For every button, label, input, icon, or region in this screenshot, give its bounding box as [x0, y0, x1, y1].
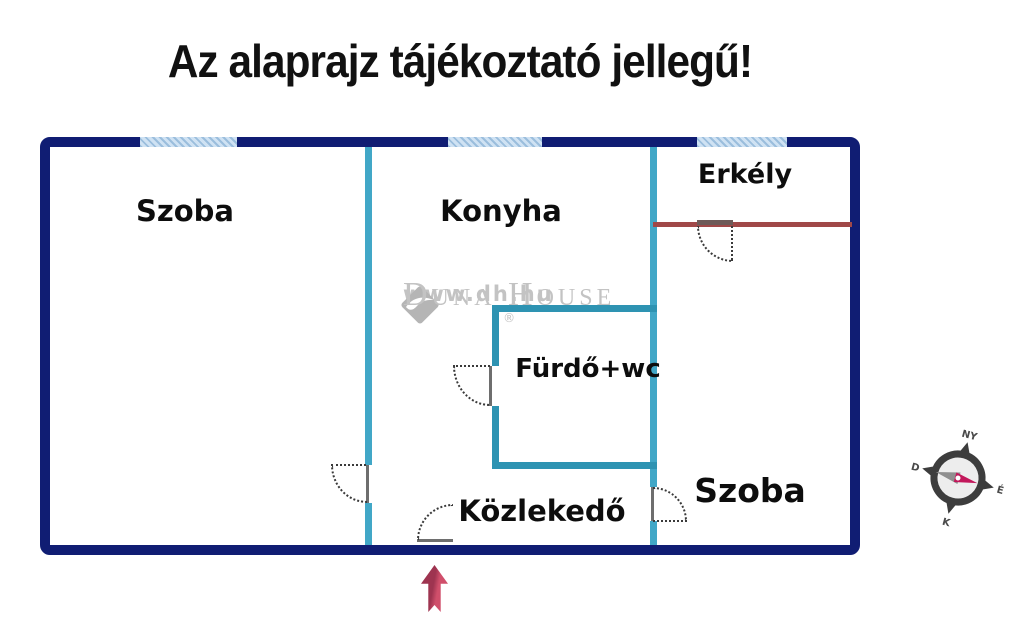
door-leaf-balcony: [697, 220, 733, 225]
door-open-line-szoba-right: [653, 520, 687, 522]
window-erkely: [697, 137, 787, 147]
window-szoba-left: [140, 137, 237, 147]
wall-konyha-szoba-right-upper: [650, 147, 657, 487]
watermark-brand: Duna House: [403, 280, 615, 311]
registered-mark: ®: [503, 311, 515, 325]
compass-east-label: K: [941, 517, 953, 530]
window-konyha: [448, 137, 542, 147]
compass-north-label: É: [995, 483, 1005, 497]
door-swing-balcony: [697, 226, 733, 262]
compass-south-label: D: [910, 462, 921, 475]
room-label-furdo-wc: Fürdő+wc: [478, 354, 698, 384]
wall-bathroom-bottom: [492, 462, 657, 469]
door-open-line-szoba-left: [331, 464, 366, 466]
room-label-kozlekedo: Közlekedő: [432, 494, 652, 528]
watermark-text: Duna House® www.dh.hu: [403, 280, 554, 306]
entrance-arrow-icon: [421, 565, 448, 612]
wall-szoba-konyha-upper: [365, 147, 372, 465]
balcony-rail-line: [653, 222, 852, 227]
wall-szoba-konyha-lower: [365, 503, 372, 545]
disclaimer-title: Az alaprajz tájékoztató jellegű!: [74, 34, 847, 88]
door-open-line-balcony: [731, 226, 733, 260]
watermark: Duna House® www.dh.hu: [395, 280, 554, 306]
compass-rose: NY É K D: [897, 417, 1019, 539]
room-label-erkely: Erkély: [635, 159, 855, 190]
floorplan-outer-wall: Duna House® www.dh.hu Szoba Konyha Erkél…: [40, 137, 860, 555]
floorplan-page: { "title": "Az alaprajz tájékoztató jell…: [0, 0, 1024, 628]
room-label-szoba-left: Szoba: [75, 194, 295, 228]
room-label-konyha: Konyha: [391, 194, 611, 228]
room-label-szoba-right: Szoba: [640, 471, 860, 510]
door-swing-szoba-left: [331, 465, 367, 503]
wall-bathroom-left-lower: [492, 406, 499, 469]
compass-west-label: NY: [960, 429, 979, 444]
